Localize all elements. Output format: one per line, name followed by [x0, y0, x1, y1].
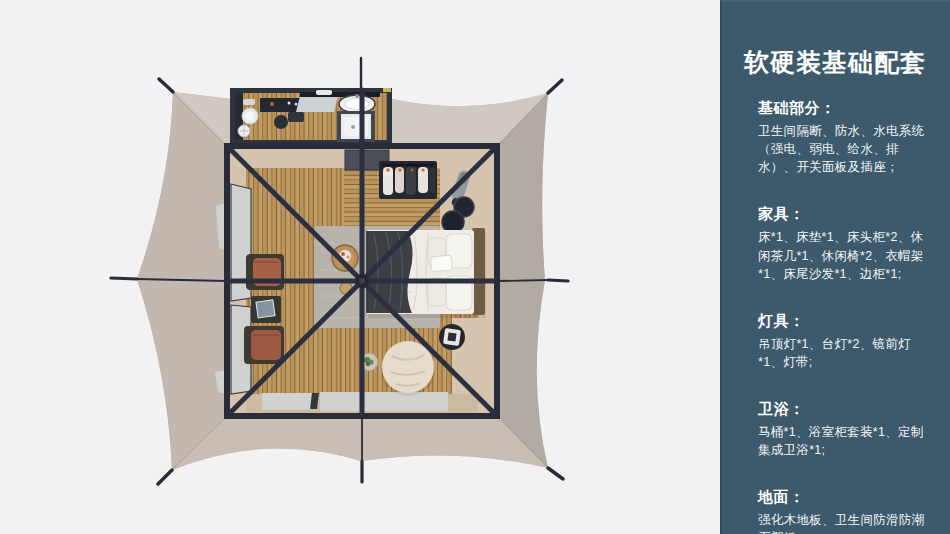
section-heading: 地面：	[758, 488, 934, 507]
tent-topview-svg	[0, 0, 720, 534]
shower-tray	[337, 111, 375, 142]
floorplan-render	[0, 0, 720, 534]
bathroom-pod	[230, 88, 392, 145]
section-body: 床*1、床垫*1、床头柜*2、休闲茶几*1、休闲椅*2、衣帽架*1、床尾沙发*1…	[758, 228, 934, 282]
panel-title: 软硬装基础配套	[730, 46, 940, 79]
section-body: 吊顶灯*1、台灯*2、镜前灯*1、灯带;	[758, 335, 934, 371]
section-bathroom: 卫浴： 马桶*1、浴室柜套装*1、定制集成卫浴*1;	[758, 400, 934, 459]
lounge-chair-lower	[244, 326, 284, 364]
section-body: 马桶*1、浴室柜套装*1、定制集成卫浴*1;	[758, 423, 934, 459]
section-lighting: 灯具： 吊顶灯*1、台灯*2、镜前灯*1、灯带;	[758, 312, 934, 371]
bed-accent-pillow	[431, 255, 453, 271]
floor-panel-bottom-left	[262, 393, 312, 410]
washbasin	[339, 94, 375, 113]
accent-light	[383, 88, 391, 92]
section-body: 强化木地板、卫生间防滑防潮石塑板;	[758, 511, 934, 534]
magazine-table	[251, 296, 281, 323]
presentation-slide: 软硬装基础配套 基础部分： 卫生间隔断、防水、水电系统（强电、弱电、给水、排水）…	[0, 0, 950, 534]
section-heading: 基础部分：	[758, 99, 934, 118]
info-panel: 软硬装基础配套 基础部分： 卫生间隔断、防水、水电系统（强电、弱电、给水、排水）…	[720, 0, 950, 534]
panel-body: 基础部分： 卫生间隔断、防水、水电系统（强电、弱电、给水、排水）、开关面板及插座…	[758, 99, 934, 534]
section-basics: 基础部分： 卫生间隔断、防水、水电系统（强电、弱电、给水、排水）、开关面板及插座…	[758, 99, 934, 176]
lounge-chair-upper	[246, 254, 284, 290]
tray-stool	[439, 324, 465, 350]
towel	[316, 90, 332, 95]
section-furniture: 家具： 床*1、床垫*1、床头柜*2、休闲茶几*1、休闲椅*2、衣帽架*1、床尾…	[758, 205, 934, 282]
section-heading: 灯具：	[758, 312, 934, 331]
coat-rack	[379, 161, 437, 199]
section-flooring: 地面： 强化木地板、卫生间防滑防潮石塑板;	[758, 488, 934, 534]
section-heading: 家具：	[758, 205, 934, 224]
section-body: 卫生间隔断、防水、水电系统（强电、弱电、给水、排水）、开关面板及插座；	[758, 122, 934, 176]
section-heading: 卫浴：	[758, 400, 934, 419]
mirror-panel	[296, 96, 338, 112]
floor-panel-bottom-right	[320, 392, 448, 411]
